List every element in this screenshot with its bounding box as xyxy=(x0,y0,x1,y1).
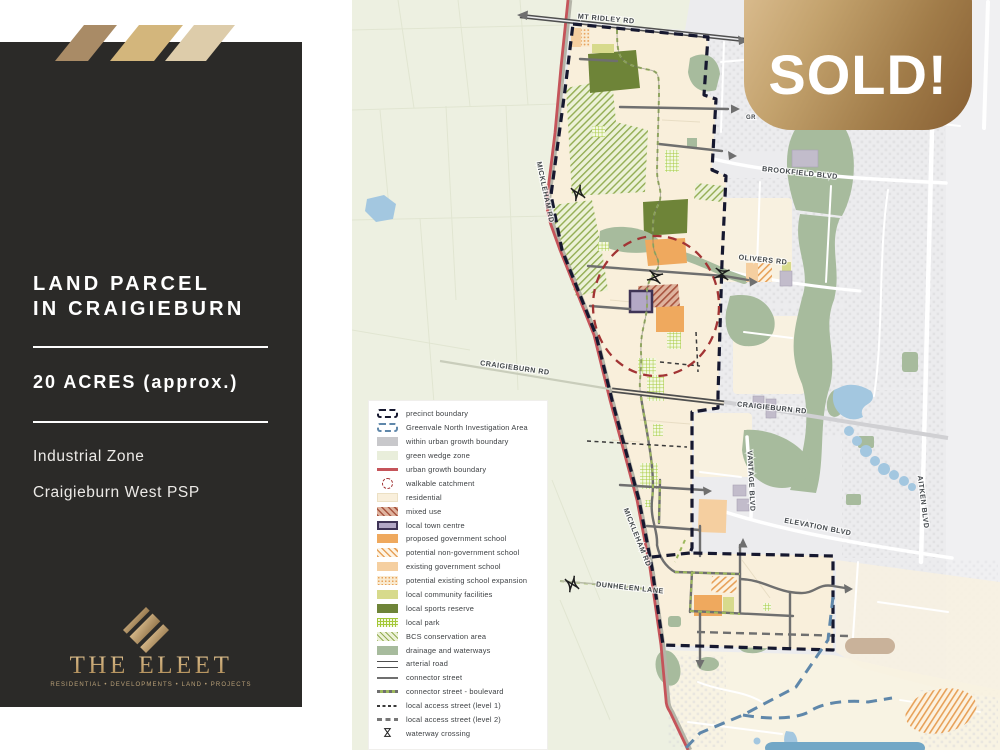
legend-label: waterway crossing xyxy=(406,729,470,738)
mixed-use-swatch-icon xyxy=(377,507,398,516)
legend-item-residential: residential xyxy=(377,490,547,504)
legend-item-bcs: BCS conservation area xyxy=(377,629,547,643)
bcs-swatch-icon xyxy=(377,632,398,641)
legend-label: BCS conservation area xyxy=(406,632,486,641)
existing-school-swatch-icon xyxy=(377,562,398,571)
legend-item-greenvale: Greenvale North Investigation Area xyxy=(377,421,547,435)
flyer: LAND PARCEL IN CRAIGIEBURN 20 ACRES (app… xyxy=(0,0,1000,750)
divider xyxy=(33,421,268,423)
precinct-boundary-swatch-icon xyxy=(377,409,398,418)
legend-item-park: local park xyxy=(377,615,547,629)
legend-label: proposed government school xyxy=(406,534,507,543)
waterway-swatch-icon xyxy=(377,729,398,738)
access1-swatch-icon xyxy=(377,701,398,710)
residential-swatch-icon xyxy=(377,493,398,502)
legend-item-proposed-school: proposed government school xyxy=(377,532,547,546)
legend-item-green-wedge: green wedge zone xyxy=(377,449,547,463)
legend-item-non-gov-school: potential non-government school xyxy=(377,546,547,560)
town-centre-swatch-icon xyxy=(377,521,398,530)
legend-label: local sports reserve xyxy=(406,604,474,613)
legend-label: mixed use xyxy=(406,507,441,516)
legend-label: walkable catchment xyxy=(406,479,475,488)
ugb-swatch-icon xyxy=(377,465,398,474)
title-line-2: IN CRAIGIEBURN xyxy=(33,297,244,322)
sold-banner: SOLD! xyxy=(744,0,972,130)
legend-label: potential existing school expansion xyxy=(406,576,527,585)
legend-label: existing government school xyxy=(406,562,501,571)
legend-label: local access street (level 2) xyxy=(406,715,501,724)
legend-item-town-centre: local town centre xyxy=(377,518,547,532)
legend-item-connector: connector street xyxy=(377,671,547,685)
legend-item-within-ugb: within urban growth boundary xyxy=(377,435,547,449)
road-label-gr-partial: GR xyxy=(746,115,756,121)
legend-label: residential xyxy=(406,493,442,502)
legend-label: precinct boundary xyxy=(406,409,468,418)
gold-stripes-decoration xyxy=(0,0,260,70)
legend-item-community: local community facilities xyxy=(377,588,547,602)
eleet-diamond-icon xyxy=(120,604,172,656)
walkable-swatch-icon xyxy=(382,478,393,489)
legend-label: within urban growth boundary xyxy=(406,437,509,446)
drainage-swatch-icon xyxy=(377,646,398,655)
non-gov-school-swatch-icon xyxy=(377,548,398,557)
legend-label: connector street - boulevard xyxy=(406,687,504,696)
legend-item-arterial: arterial road xyxy=(377,657,547,671)
connector-swatch-icon xyxy=(377,673,398,682)
legend-item-boulevard: connector street - boulevard xyxy=(377,685,547,699)
page-title: LAND PARCEL IN CRAIGIEBURN xyxy=(33,272,244,322)
legend-item-ugb: urban growth boundary xyxy=(377,463,547,477)
legend-label: local park xyxy=(406,618,440,627)
park-swatch-icon xyxy=(377,618,398,627)
boulevard-swatch-icon xyxy=(377,687,398,696)
sports-swatch-icon xyxy=(377,604,398,613)
within-ugb-swatch-icon xyxy=(377,437,398,446)
legend-item-school-expansion: potential existing school expansion xyxy=(377,574,547,588)
legend-label: connector street xyxy=(406,673,462,682)
legend-item-mixed-use: mixed use xyxy=(377,504,547,518)
legend-label: urban growth boundary xyxy=(406,465,486,474)
tan-land-patch xyxy=(845,638,895,654)
legend-label: local access street (level 1) xyxy=(406,701,501,710)
legend-item-access1: local access street (level 1) xyxy=(377,699,547,713)
sold-banner-label: SOLD! xyxy=(744,0,972,107)
legend-item-waterway: waterway crossing xyxy=(377,726,547,740)
zone-detail: Industrial Zone xyxy=(33,448,145,466)
legend-label: potential non-government school xyxy=(406,548,519,557)
legend-item-access2: local access street (level 2) xyxy=(377,713,547,727)
legend-item-sports: local sports reserve xyxy=(377,601,547,615)
logo-tagline: RESIDENTIAL • DEVELOPMENTS • LAND • PROJ… xyxy=(0,682,302,688)
legend-item-walkable: walkable catchment xyxy=(377,476,547,490)
land-area: 20 ACRES (approx.) xyxy=(33,372,238,393)
legend-label: Greenvale North Investigation Area xyxy=(406,423,528,432)
logo-wordmark: THE ELEET xyxy=(0,652,302,680)
proposed-school-swatch-icon xyxy=(377,534,398,543)
arterial-swatch-icon xyxy=(377,659,398,668)
community-swatch-icon xyxy=(377,590,398,599)
legend-items: precinct boundaryGreenvale North Investi… xyxy=(377,407,547,740)
greenvale-callout-box xyxy=(765,742,925,750)
legend-label: drainage and waterways xyxy=(406,646,491,655)
legend-label: local town centre xyxy=(406,521,465,530)
legend-item-drainage: drainage and waterways xyxy=(377,643,547,657)
title-line-1: LAND PARCEL xyxy=(33,272,244,297)
school-expansion-swatch-icon xyxy=(377,576,398,585)
psp-detail: Craigieburn West PSP xyxy=(33,484,200,502)
legend-label: local community facilities xyxy=(406,590,493,599)
greenvale-swatch-icon xyxy=(377,423,398,432)
divider xyxy=(33,346,268,348)
map-legend: precinct boundaryGreenvale North Investi… xyxy=(368,400,548,750)
legend-item-precinct-boundary: precinct boundary xyxy=(377,407,547,421)
green-wedge-swatch-icon xyxy=(377,451,398,460)
legend-label: green wedge zone xyxy=(406,451,470,460)
legend-label: arterial road xyxy=(406,659,448,668)
legend-item-existing-school: existing government school xyxy=(377,560,547,574)
